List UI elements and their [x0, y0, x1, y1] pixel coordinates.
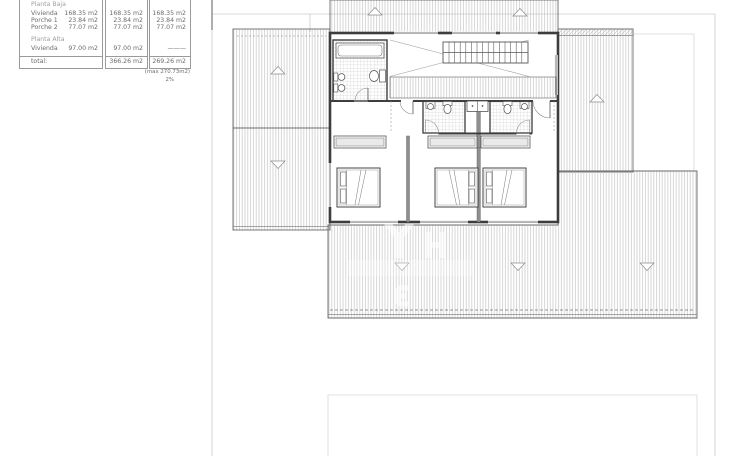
toilet	[504, 104, 511, 113]
roof-left-upper	[233, 29, 330, 128]
section-title: Planta Baja	[31, 2, 66, 8]
building	[328, 31, 558, 223]
closets	[467, 101, 488, 112]
windows-bottom-wall	[350, 220, 538, 223]
roof-left-lower	[233, 128, 330, 230]
footnote-max: (max 270.73m2)	[138, 70, 190, 75]
total-label: total:	[31, 59, 47, 65]
toilet	[444, 104, 451, 113]
row-label: Vivienda	[31, 46, 58, 52]
table-divider	[106, 56, 147, 57]
sink	[522, 104, 528, 110]
setback-line-bottom	[328, 395, 697, 456]
table-column-2: 168.35 m2 23.84 m2 77.07 m2 97.00 m2 366…	[105, 0, 148, 69]
roof-top	[330, 0, 558, 33]
section-title: Planta Alta	[31, 37, 65, 43]
void-hatch-band	[390, 77, 556, 98]
total-value: 269.26 m2	[152, 59, 186, 65]
row-value: ———	[167, 46, 186, 52]
bathroom-main	[333, 40, 387, 101]
total-value: 366.26 m2	[109, 59, 143, 65]
toilet	[370, 71, 379, 82]
sink	[428, 104, 434, 110]
bathroom-ensuite-right	[490, 101, 532, 133]
row-label: Porche 2	[31, 25, 58, 31]
bathroom-ensuite-left	[423, 101, 465, 133]
bed-2	[435, 168, 478, 207]
footnote-percent: 2%	[138, 78, 190, 83]
row-value: 97.00 m2	[68, 46, 98, 52]
sink	[338, 74, 345, 81]
windows-top-wall	[394, 31, 538, 34]
area-summary-table: Planta Baja Vivienda 168.35 m2 Porche 1 …	[0, 0, 210, 95]
row-value: 77.07 m2	[156, 25, 186, 31]
staircase	[443, 42, 528, 63]
row-value: 77.07 m2	[113, 25, 143, 31]
bed-1	[337, 168, 380, 207]
row-value: 97.00 m2	[113, 46, 143, 52]
partition-wall	[407, 136, 410, 222]
wardrobes	[334, 136, 530, 148]
row-value: 77.07 m2	[68, 25, 98, 31]
window-left-wall	[328, 163, 331, 207]
sink	[338, 85, 345, 92]
table-column-3: 168.35 m2 23.84 m2 77.07 m2 ——— 269.26 m…	[149, 0, 191, 69]
table-column-labels: Planta Baja Vivienda 168.35 m2 Porche 1 …	[19, 0, 103, 69]
floor-plan-sheet: Planta Baja Vivienda 168.35 m2 Porche 1 …	[0, 0, 756, 456]
bed-3	[483, 168, 526, 207]
table-divider	[150, 56, 190, 57]
setback-line-top-right	[633, 34, 694, 171]
table-divider	[20, 56, 102, 57]
